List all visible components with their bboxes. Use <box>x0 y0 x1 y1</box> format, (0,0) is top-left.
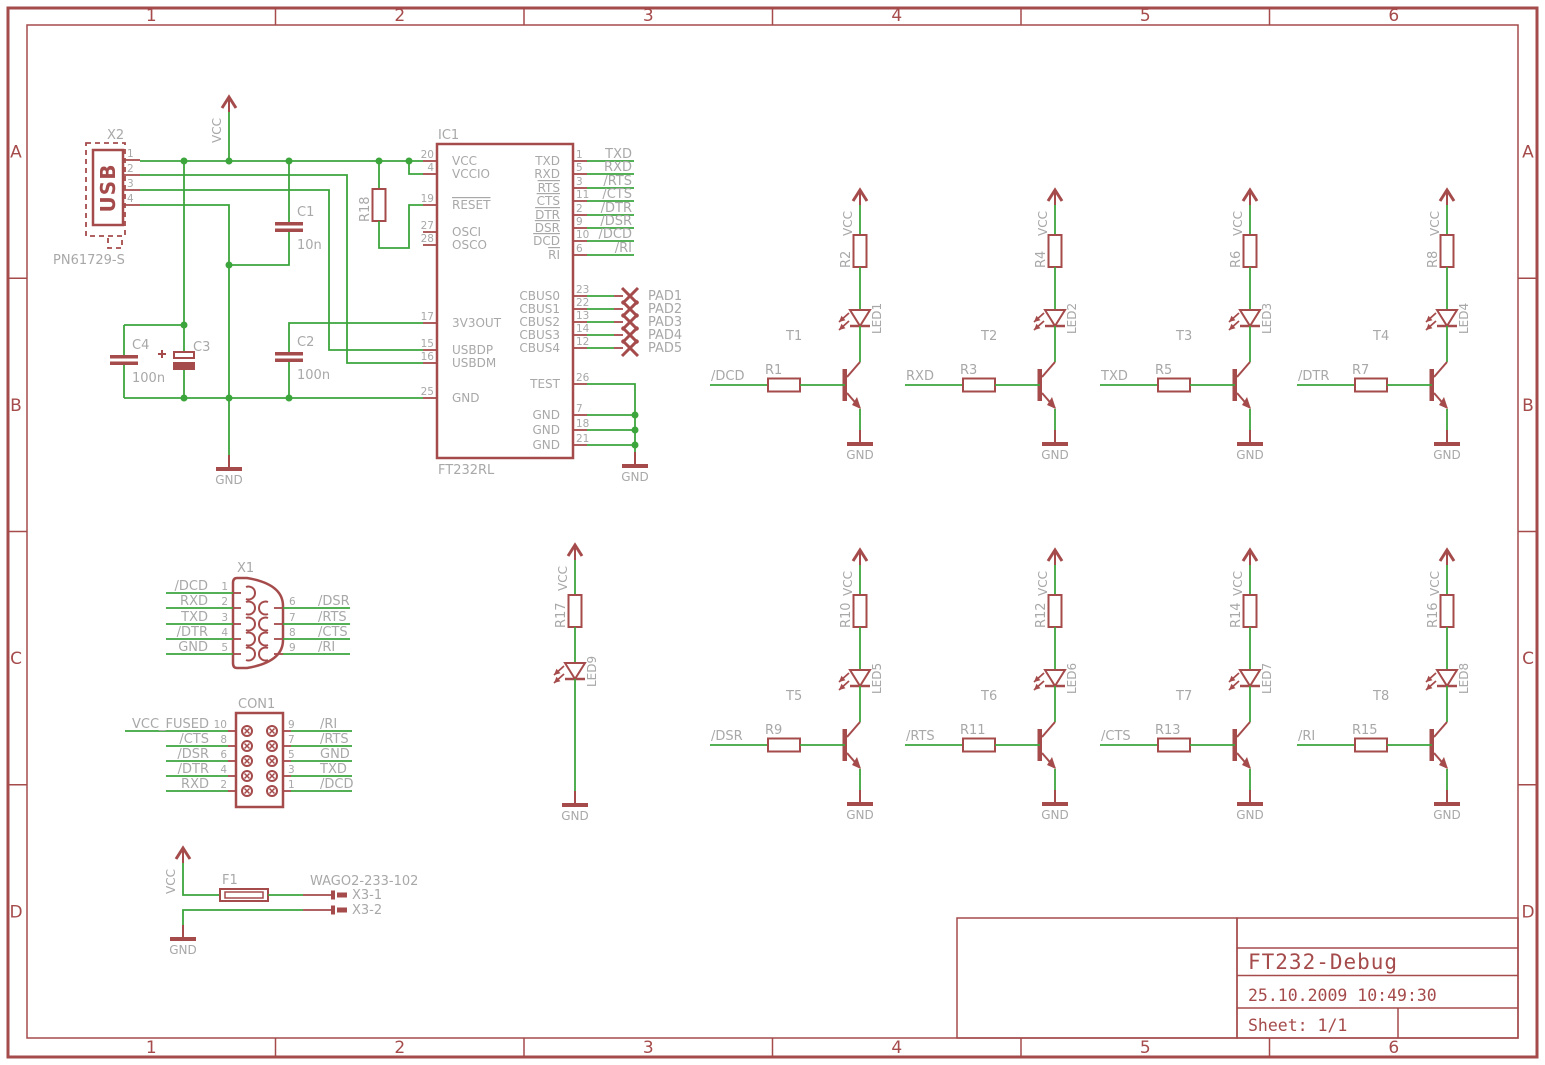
vcc-symbol: VCC <box>210 97 236 143</box>
transistor[interactable] <box>1038 722 1057 769</box>
ic-value: FT232RL <box>438 463 495 478</box>
pin-number: 2 <box>221 596 228 608</box>
net-label: /DSR <box>318 594 350 609</box>
led[interactable]: LED1 <box>839 303 884 334</box>
title-block: FT232-Debug25.10.2009 10:49:30Sheet: 1/1 <box>957 918 1518 1038</box>
wire <box>229 232 289 265</box>
frame-row-label: A <box>1522 143 1534 163</box>
gnd-label: GND <box>215 473 243 487</box>
connector-ref: X1 <box>237 561 254 576</box>
pin-number: 21 <box>576 433 589 445</box>
gnd-label: GND <box>846 808 874 822</box>
pin-name: CBUS0 <box>519 289 560 303</box>
transistor-ref: T6 <box>980 689 997 704</box>
led-ref: LED5 <box>870 663 884 694</box>
wire <box>587 384 635 452</box>
frame-row-label: C <box>1522 649 1534 669</box>
pin-stub <box>847 722 860 737</box>
vcc-symbol: VCC <box>164 848 190 894</box>
pin-name: CBUS3 <box>519 328 560 342</box>
transistor-ref: T7 <box>1175 689 1192 704</box>
capacitor-ref: C4 <box>132 338 149 353</box>
junction-dot <box>226 158 233 165</box>
resistor-ref: R17 <box>554 602 569 628</box>
gnd-label: GND <box>169 943 197 957</box>
gnd-label: GND <box>1041 808 1069 822</box>
net-label: /RTS <box>318 610 347 625</box>
gnd-label: GND <box>621 470 649 484</box>
pin-number: 25 <box>421 386 434 398</box>
pin-stub <box>1237 362 1250 377</box>
vcc-label: VCC <box>210 118 224 143</box>
net-label: TXD <box>319 762 347 777</box>
driver-cell[interactable]: VCCR4LED2GNDR3RXDT2 <box>905 190 1079 462</box>
resistor[interactable]: R15 <box>1352 723 1387 752</box>
pin-stub <box>1042 362 1055 377</box>
transistor-ref: T8 <box>1372 689 1389 704</box>
driver-cell[interactable]: VCCR16LED8GNDR15/RIT8 <box>1297 550 1471 822</box>
fuse-part-label: WAGO2-233-102 <box>310 874 418 889</box>
driver-cell[interactable]: VCCR2LED1GNDR1/DCDT1 <box>710 190 884 462</box>
pin-number: 5 <box>288 749 295 761</box>
pin-number: 6 <box>220 749 227 761</box>
pin-number: 2 <box>576 203 583 215</box>
frame-col-label: 3 <box>643 1038 654 1058</box>
pin-number: 1 <box>127 148 134 160</box>
net-label: GND <box>320 747 350 762</box>
pin-number: 4 <box>427 162 434 174</box>
pin-number: 13 <box>576 310 589 322</box>
vcc-symbol: VCC <box>1428 550 1454 596</box>
resistor[interactable]: R1 <box>765 363 800 392</box>
led-ref: LED4 <box>1457 303 1471 334</box>
pin-number: 7 <box>289 612 296 624</box>
pin-number: 3 <box>288 764 295 776</box>
pin-name: DCD <box>533 234 560 248</box>
gnd-label: GND <box>1433 808 1461 822</box>
pin-number: 3 <box>576 176 583 188</box>
pin-name: RESET <box>452 198 491 212</box>
pin-name: GND <box>532 438 560 452</box>
usb-package: PN61729-S <box>53 253 125 268</box>
pin-number: 4 <box>127 193 134 205</box>
capacitor[interactable]: C2100n <box>275 335 330 383</box>
junction-dot <box>286 395 293 402</box>
transistor[interactable] <box>1233 362 1252 409</box>
connector-con1[interactable]: CON110VCC_FUSED9/RI8/CTS7/RTS6/DSR5GND4/… <box>125 697 353 807</box>
pin-name: OSCO <box>452 238 487 252</box>
gnd-symbol: GND <box>1433 790 1461 822</box>
vcc-symbol: VCC <box>1036 190 1062 236</box>
led-ref: LED2 <box>1065 303 1079 334</box>
pin-name: 3V3OUT <box>452 316 502 330</box>
pin-number: 22 <box>576 297 589 309</box>
transistor[interactable] <box>1038 362 1057 409</box>
net-label: /RI <box>318 640 335 655</box>
schematic-canvas: 112233445566AABBCCDDFT232-Debug25.10.200… <box>0 0 1545 1065</box>
frame-row-label: A <box>10 143 22 163</box>
pin-number: 26 <box>576 372 590 384</box>
frame-col-label: 3 <box>643 6 654 26</box>
pin-number: 19 <box>421 193 434 205</box>
vcc-label: VCC <box>1428 571 1442 596</box>
pin-name: DSR <box>535 221 560 235</box>
net-label: /RTS <box>320 732 349 747</box>
pin-name: CTS <box>537 194 560 208</box>
gnd-label: GND <box>846 448 874 462</box>
pin-number: 8 <box>220 734 227 746</box>
resistor-ref: R18 <box>358 196 373 222</box>
resistor[interactable]: R10 <box>839 595 867 628</box>
net-label: RXD <box>906 369 934 384</box>
resistor-ref: R9 <box>765 723 782 738</box>
pin-name: RI <box>548 248 560 262</box>
net-label: /DTR <box>1298 369 1329 384</box>
gnd-symbol: GND <box>1433 430 1461 462</box>
pin-number: 3 <box>127 178 134 190</box>
resistor-ref: R5 <box>1155 363 1172 378</box>
net-label: /DCD <box>599 227 632 242</box>
pin-number: 7 <box>576 403 583 415</box>
ic-ft232rl[interactable]: IC1FT232RL20VCC4VCCIO19RESET27OSCI28OSCO… <box>421 128 683 484</box>
pin-number: 5 <box>576 162 583 174</box>
vcc-symbol: VCC <box>1231 550 1257 596</box>
gnd-label: GND <box>1433 448 1461 462</box>
pin-number: 5 <box>221 642 228 654</box>
schematic-sheet: 112233445566AABBCCDDFT232-Debug25.10.200… <box>0 0 1545 1065</box>
transistor-ref: T4 <box>1372 329 1389 344</box>
junction-dot <box>181 395 188 402</box>
driver-cell[interactable]: VCCR10LED5GNDR9/DSRT5 <box>710 550 884 822</box>
capacitor-value: 10n <box>297 238 322 253</box>
wire <box>183 910 303 925</box>
led-ref: LED9 <box>585 656 599 687</box>
usb-connector-x2[interactable]: USBX2PN61729-S1234 <box>53 128 140 268</box>
resistor-ref: R11 <box>960 723 986 738</box>
gnd-label: GND <box>561 809 589 823</box>
led[interactable]: LED7 <box>1229 663 1274 694</box>
frame-col-label: 5 <box>1140 1038 1151 1058</box>
pin-name: DTR <box>535 208 560 222</box>
frame-col-label: 6 <box>1388 1038 1399 1058</box>
gnd-symbol: GND <box>1236 430 1264 462</box>
resistor[interactable]: R11 <box>960 723 995 752</box>
pin-name: RXD <box>534 167 560 181</box>
pin-number: 7 <box>288 734 295 746</box>
terminal-label: X3-2 <box>352 903 382 918</box>
led-ref: LED3 <box>1260 303 1274 334</box>
led[interactable]: LED4 <box>1426 303 1471 334</box>
vcc-label: VCC <box>1231 571 1245 596</box>
junction-dot <box>181 158 188 165</box>
gnd-symbol: GND <box>215 455 243 487</box>
vcc-label: VCC <box>1428 211 1442 236</box>
pin-stub <box>1434 362 1447 377</box>
pin-number: 9 <box>576 216 583 228</box>
terminal-label: X3-1 <box>352 888 382 903</box>
capacitor[interactable]: C110n <box>275 205 322 253</box>
capacitor-value: 100n <box>132 371 165 386</box>
title-block-date: 25.10.2009 10:49:30 <box>1248 986 1437 1005</box>
vcc-label: VCC <box>1036 211 1050 236</box>
transistor-ref: T5 <box>785 689 802 704</box>
resistor[interactable]: R17 <box>554 595 582 628</box>
resistor-ref: R4 <box>1034 251 1049 268</box>
left-area-wiring: VCCC4100nC3C110nGNDR18C2100n <box>110 97 423 487</box>
pin-name: CBUS4 <box>519 341 560 355</box>
pin-number: 11 <box>576 189 589 201</box>
vcc-symbol: VCC <box>1428 190 1454 236</box>
gnd-symbol: GND <box>621 452 649 484</box>
junction-dot <box>406 158 413 165</box>
led-ref: LED1 <box>870 303 884 334</box>
pin-number: 9 <box>289 642 296 654</box>
resistor[interactable]: R14 <box>1229 595 1257 628</box>
driver-cell[interactable]: VCCR12LED6GNDR11/RTST6 <box>905 550 1079 822</box>
capacitor-ref: C2 <box>297 335 314 350</box>
pin-name: CBUS2 <box>519 315 560 329</box>
net-label: /RI <box>320 717 337 732</box>
capacitor[interactable]: C4100n <box>110 338 165 386</box>
gnd-symbol: GND <box>846 430 874 462</box>
pin-number: 8 <box>289 627 296 639</box>
frame-col-label: 2 <box>394 6 405 26</box>
net-label: /RI <box>1298 729 1315 744</box>
vcc-symbol: VCC <box>1036 550 1062 596</box>
net-label: /DSR <box>711 729 743 744</box>
net-label: /RI <box>615 241 632 256</box>
ic-ref: IC1 <box>438 128 459 143</box>
title-block-title: FT232-Debug <box>1248 950 1398 974</box>
net-label: TXD <box>180 610 208 625</box>
net-label: /DTR <box>177 625 208 640</box>
net-label: RXD <box>604 160 632 175</box>
resistor[interactable]: R4 <box>1034 235 1062 268</box>
net-label: TXD <box>1100 369 1128 384</box>
resistor[interactable]: R2 <box>839 235 867 268</box>
frame-col-label: 1 <box>146 1038 157 1058</box>
resistor[interactable]: R9 <box>765 723 800 752</box>
frame-col-label: 4 <box>891 1038 902 1058</box>
resistor[interactable]: R18 <box>358 189 386 222</box>
net-label: /DTR <box>178 762 209 777</box>
pin-number: 9 <box>288 719 295 731</box>
pin-number: 4 <box>221 627 228 639</box>
pin-name: VCC <box>452 154 477 168</box>
frame-row-label: B <box>10 396 22 416</box>
pin-number: 1 <box>288 779 295 791</box>
net-label: /DCD <box>175 579 208 594</box>
led[interactable]: LED2 <box>1034 303 1079 334</box>
resistor-ref: R8 <box>1426 251 1441 268</box>
transistor-ref: T3 <box>1175 329 1192 344</box>
pin-stub <box>1434 722 1447 737</box>
pin-number: 10 <box>214 719 227 731</box>
led-ref: LED7 <box>1260 663 1274 694</box>
pin-number: 1 <box>221 581 228 593</box>
pin-number: 6 <box>576 243 583 255</box>
net-label: /DCD <box>711 369 744 384</box>
pin-number: 12 <box>576 336 589 348</box>
pin-number: 2 <box>127 163 134 175</box>
pin-name: GND <box>532 423 560 437</box>
led-ref: LED6 <box>1065 663 1079 694</box>
resistor[interactable]: R12 <box>1034 595 1062 628</box>
junction-dot <box>226 262 233 269</box>
net-label: RXD <box>180 594 208 609</box>
resistor[interactable]: R16 <box>1426 595 1454 628</box>
led[interactable]: LED8 <box>1426 663 1471 694</box>
net-label: /DSR <box>177 747 209 762</box>
gnd-symbol: GND <box>1236 790 1264 822</box>
transistor[interactable] <box>1430 362 1449 409</box>
vcc-label: VCC <box>164 869 178 894</box>
transistor[interactable] <box>843 722 862 769</box>
resistor-ref: R7 <box>1352 363 1369 378</box>
junction-dot <box>181 322 188 329</box>
resistor-ref: R16 <box>1426 602 1441 628</box>
capacitor-ref: C1 <box>297 205 314 220</box>
pin-number: 14 <box>576 323 590 335</box>
resistor-ref: R2 <box>839 251 854 268</box>
net-label: VCC_FUSED <box>132 717 209 732</box>
vcc-label: VCC <box>841 571 855 596</box>
net-label: RXD <box>181 777 209 792</box>
gnd-label: GND <box>1236 808 1264 822</box>
frame-row-label: B <box>1522 396 1534 416</box>
usb-ref: X2 <box>107 128 124 143</box>
pin-name: GND <box>452 391 480 405</box>
pin-number: 27 <box>421 220 434 232</box>
frame-row-label: D <box>9 902 22 922</box>
gnd-symbol: GND <box>1041 430 1069 462</box>
junction-dot <box>632 412 639 419</box>
usb-part-label: USB <box>96 164 120 213</box>
driver-cell[interactable]: VCCR14LED7GNDR13/CTST7 <box>1100 550 1274 822</box>
pin-number: 23 <box>576 284 589 296</box>
resistor[interactable]: R5 <box>1155 363 1190 392</box>
resistor-ref: R10 <box>839 602 854 628</box>
led-ref: LED8 <box>1457 663 1471 694</box>
frame-col-label: 2 <box>394 1038 405 1058</box>
pin-stub <box>1042 722 1055 737</box>
capacitor-ref: C3 <box>193 340 210 355</box>
resistor[interactable]: R6 <box>1229 235 1257 268</box>
wire <box>140 175 423 363</box>
pin-name: GND <box>532 408 560 422</box>
frame-row-label: D <box>1521 902 1534 922</box>
driver-cell[interactable]: VCCR8LED4GNDR7/DTRT4 <box>1297 190 1471 462</box>
net-label: /CTS <box>179 732 209 747</box>
net-label: GND <box>178 640 208 655</box>
pin-name: USBDM <box>452 356 496 370</box>
net-label: /CTS <box>1101 729 1131 744</box>
net-label: /CTS <box>318 625 348 640</box>
led[interactable]: LED9 <box>554 656 599 687</box>
fuse-block[interactable]: VCCF1WAGO2-233-102X3-1X3-2GND <box>164 848 418 957</box>
connector-x1[interactable]: X11/DCD2RXD3TXD4/DTR5GND6/DSR7/RTS8/CTS9… <box>166 561 350 668</box>
gnd-symbol: GND <box>1041 790 1069 822</box>
junction-dot <box>226 395 233 402</box>
gnd-symbol: GND <box>561 791 589 823</box>
resistor-ref: R13 <box>1155 723 1181 738</box>
vcc-symbol: VCC <box>556 545 582 591</box>
resistor[interactable]: R3 <box>960 363 995 392</box>
net-label: /CTS <box>602 187 632 202</box>
resistor[interactable]: R7 <box>1352 363 1387 392</box>
driver-cell[interactable]: VCCR6LED3GNDR5TXDT3 <box>1100 190 1274 462</box>
resistor[interactable]: R8 <box>1426 235 1454 268</box>
resistor-ref: R1 <box>765 363 782 378</box>
led[interactable]: LED5 <box>839 663 884 694</box>
vcc-symbol: VCC <box>841 190 867 236</box>
junction-dot <box>286 158 293 165</box>
pin-name: OSCI <box>452 225 481 239</box>
junction-dot <box>376 158 383 165</box>
pin-number: 6 <box>289 596 296 608</box>
pin-name: TXD <box>534 154 560 168</box>
led[interactable]: LED3 <box>1229 303 1274 334</box>
pin-number: 4 <box>220 764 227 776</box>
pin-number: 1 <box>576 149 583 161</box>
resistor[interactable]: R13 <box>1155 723 1190 752</box>
transistor[interactable] <box>1233 722 1252 769</box>
wire <box>183 863 220 895</box>
pin-number: 2 <box>220 779 227 791</box>
net-label: /DCD <box>320 777 353 792</box>
transistor[interactable] <box>1430 722 1449 769</box>
led[interactable]: LED6 <box>1034 663 1079 694</box>
resistor-ref: R12 <box>1034 602 1049 628</box>
net-label: /RTS <box>906 729 935 744</box>
transistor[interactable] <box>843 362 862 409</box>
pin-number: 3 <box>221 612 228 624</box>
pin-number: 17 <box>421 311 434 323</box>
pin-stub <box>847 362 860 377</box>
frame-col-label: 1 <box>146 6 157 26</box>
resistor-ref: R15 <box>1352 723 1378 738</box>
vcc-label: VCC <box>1231 211 1245 236</box>
gnd-label: GND <box>1041 448 1069 462</box>
pin-name: CBUS1 <box>519 302 560 316</box>
capacitor-value: 100n <box>297 368 330 383</box>
resistor-ref: R14 <box>1229 602 1244 628</box>
frame-col-label: 5 <box>1140 6 1151 26</box>
vcc-label: VCC <box>841 211 855 236</box>
junction-dot <box>632 427 639 434</box>
gnd-label: GND <box>1236 448 1264 462</box>
pin-number: 28 <box>421 233 434 245</box>
frame-col-label: 4 <box>891 6 902 26</box>
frame-row-label: C <box>10 649 22 669</box>
led9-cell[interactable]: VCCR17LED9GND <box>554 545 599 823</box>
gnd-symbol: GND <box>169 925 197 957</box>
pin-name: RTS <box>538 181 560 195</box>
title-block-sheet: Sheet: 1/1 <box>1248 1016 1347 1035</box>
connector-ref: CON1 <box>238 697 275 712</box>
vcc-symbol: VCC <box>1231 190 1257 236</box>
transistor-ref: T1 <box>785 329 802 344</box>
resistor-ref: R6 <box>1229 251 1244 268</box>
transistor-ref: T2 <box>980 329 997 344</box>
pin-number: 16 <box>421 351 435 363</box>
pad-label: PAD5 <box>648 341 682 356</box>
junction-dot <box>632 442 639 449</box>
vcc-label: VCC <box>1036 571 1050 596</box>
vcc-symbol: VCC <box>841 550 867 596</box>
gnd-symbol: GND <box>846 790 874 822</box>
pin-number: 20 <box>421 149 434 161</box>
